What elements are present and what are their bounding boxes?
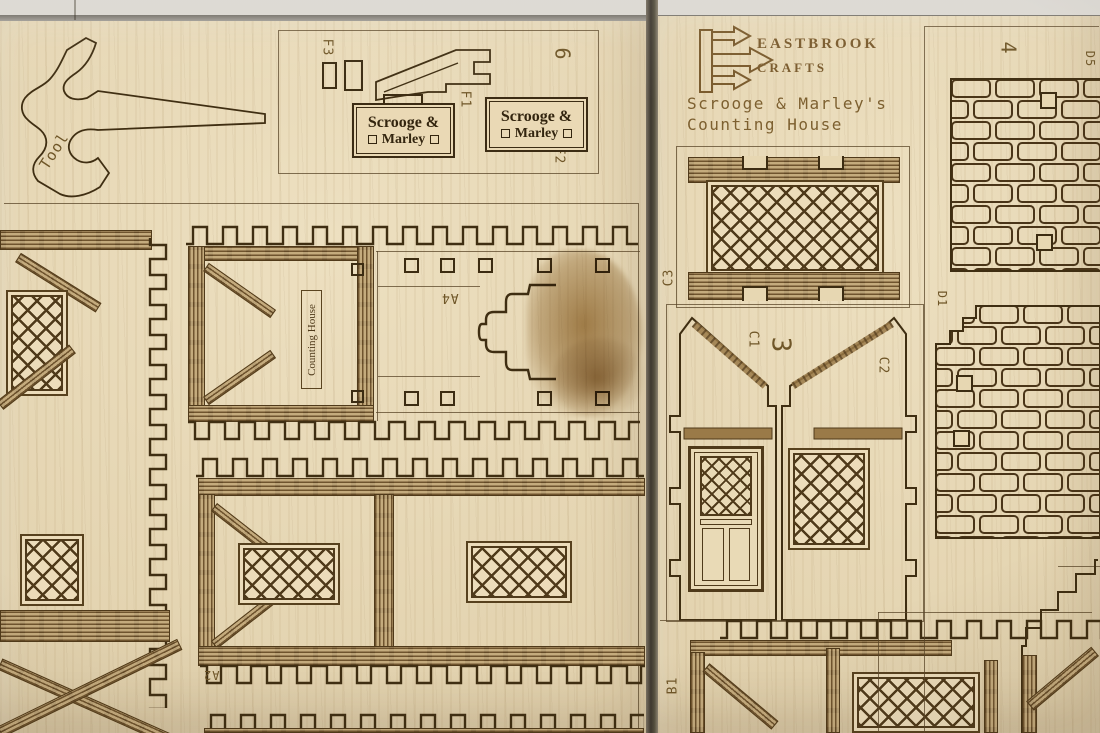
label-column-number: 4 [997, 41, 1021, 54]
timber-beam [204, 728, 644, 733]
cut-square [404, 391, 419, 406]
a4-keyed-cutout [477, 282, 559, 384]
brand-subname: CRAFTS [757, 60, 827, 76]
label-b1: B1 [665, 677, 680, 695]
timber-beam [0, 230, 152, 250]
scrooge-marley-sign: Scrooge & Marley [485, 97, 588, 152]
d1-brick-panel [934, 304, 1100, 542]
castellated-edge [196, 456, 644, 478]
cut-square [537, 391, 552, 406]
sign-corner-square [430, 135, 439, 144]
timber-post [826, 648, 840, 733]
cut-square [537, 258, 552, 273]
cut-square [478, 258, 493, 273]
cut-square [956, 375, 973, 392]
sprue-rect [344, 60, 363, 91]
sign-inner-border: Scrooge & Marley [489, 101, 584, 148]
lattice-window [466, 541, 572, 603]
cut-square [595, 391, 610, 406]
sign-corner-square [501, 129, 510, 138]
label-gable-number: 3 [765, 337, 795, 354]
timber-post [188, 246, 205, 422]
timber-notch [742, 286, 768, 301]
timber-beam [198, 646, 645, 666]
counting-house-nameplate: Counting House [301, 290, 322, 389]
sign-line2: Marley [501, 126, 573, 142]
timber-post [198, 494, 215, 652]
timber-beam [198, 478, 645, 496]
sign-corner-square [563, 129, 572, 138]
cut-square [351, 390, 364, 403]
kit-title-line1: Scrooge & Marley's [687, 94, 887, 113]
sprue-rect [322, 62, 337, 89]
engraved-door [688, 446, 764, 592]
castellated-edge [188, 420, 640, 442]
tool-piece-outline [12, 30, 278, 216]
sign-line2-text: Marley [515, 126, 559, 142]
timber-notch [818, 286, 844, 301]
door-lattice-glass [700, 456, 752, 516]
counting-house-label: Counting House [306, 304, 318, 376]
sign-corner-square [368, 135, 377, 144]
sheet-gap-seam [646, 0, 658, 733]
cut-square [440, 258, 455, 273]
timber-post [374, 494, 394, 652]
sign-line2-text: Marley [382, 132, 426, 148]
a4-bottom-edge [376, 412, 640, 413]
timber-beam [0, 610, 170, 642]
a4-left-edge [377, 251, 378, 421]
label-c2: C2 [875, 357, 890, 375]
timber-notch [742, 156, 768, 170]
label-d5: D5 [1083, 51, 1097, 67]
label-f3: F3 [319, 39, 334, 57]
lattice-window [788, 448, 870, 550]
cut-square [953, 430, 970, 447]
cut-square [1040, 92, 1057, 109]
door-inner-frame [694, 452, 758, 586]
door-mid-rail [700, 519, 752, 525]
brand-name: EASTBROOK [757, 36, 879, 53]
castellated-edge [186, 224, 638, 246]
label-sheet-number: 6 [551, 47, 575, 60]
kit-title-line2: Counting House [687, 115, 843, 134]
scrooge-marley-sign: Scrooge & Marley [352, 103, 455, 158]
lattice-window [706, 180, 884, 276]
timber-beam [690, 640, 952, 656]
cut-square [1036, 234, 1053, 251]
a4-slot-line [378, 376, 480, 377]
a4-top-edge [376, 251, 640, 252]
sign-line1: Scrooge & [501, 108, 572, 126]
sign-line2: Marley [368, 132, 440, 148]
timber-notch [818, 156, 844, 170]
castellated-edge [200, 664, 645, 686]
timber-beam [188, 246, 374, 261]
lattice-window [238, 543, 340, 605]
cut-square [440, 391, 455, 406]
lattice-window [20, 534, 84, 606]
label-f1: F1 [457, 91, 472, 109]
sign-inner-border: Scrooge & Marley [356, 107, 451, 154]
timber-beam [688, 272, 900, 300]
d5-brick-panel [950, 78, 1100, 272]
label-a2: A2 [203, 668, 219, 682]
timber-post [690, 652, 705, 733]
cut-square [595, 258, 610, 273]
door-panels [698, 528, 754, 582]
label-c3: C3 [661, 269, 676, 287]
cut-square [351, 263, 364, 276]
panel-line [878, 612, 879, 733]
cut-square [404, 258, 419, 273]
a4-slot-line [378, 286, 480, 287]
label-c1: C1 [745, 331, 760, 349]
sign-line1: Scrooge & [368, 114, 439, 132]
label-a4: A4 [441, 290, 459, 305]
photo-of-lasercut-kit-sheets: Tool F3 F1 6 F2 Scrooge & Marley Scrooge… [0, 0, 1100, 733]
